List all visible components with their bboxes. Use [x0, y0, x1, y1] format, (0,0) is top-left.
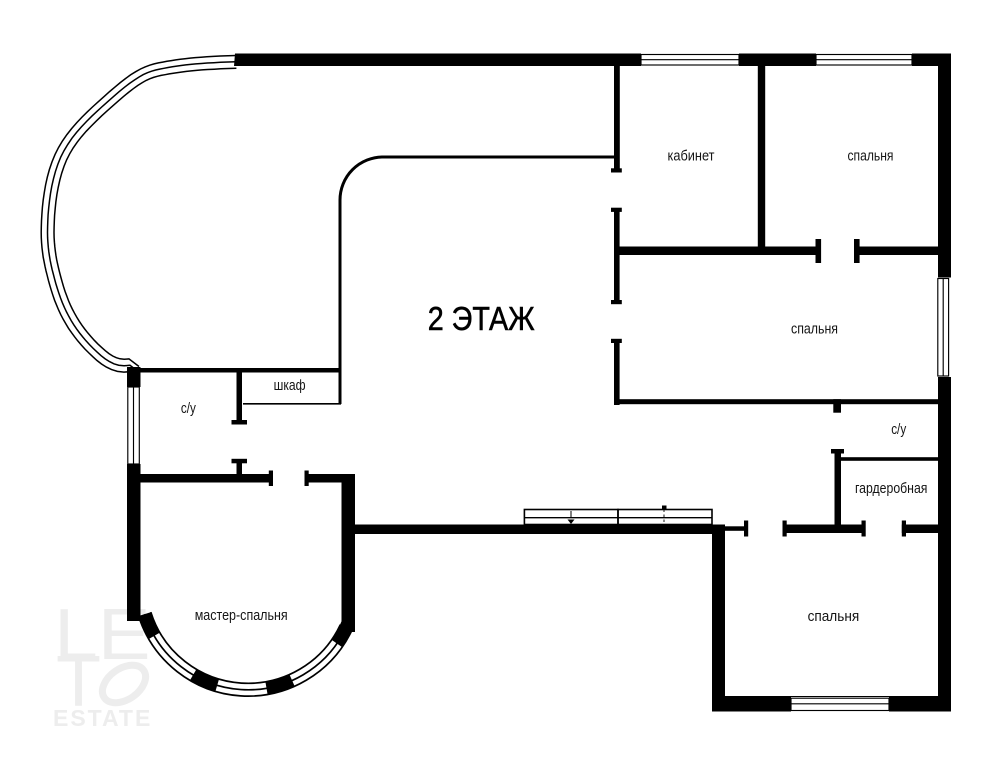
svg-text:с/у: с/у — [181, 401, 197, 417]
svg-text:шкаф: шкаф — [274, 378, 306, 394]
svg-text:с/у: с/у — [891, 422, 907, 438]
svg-text:гардеробная: гардеробная — [855, 481, 928, 497]
svg-text:ESTATE: ESTATE — [53, 705, 152, 731]
svg-text:2 ЭТАЖ: 2 ЭТАЖ — [428, 300, 535, 337]
svg-text:спальня: спальня — [808, 609, 860, 625]
svg-text:мастер-спальня: мастер-спальня — [195, 608, 288, 624]
svg-text:кабинет: кабинет — [668, 149, 715, 165]
svg-text:спальня: спальня — [848, 149, 894, 165]
svg-text:спальня: спальня — [791, 321, 838, 337]
